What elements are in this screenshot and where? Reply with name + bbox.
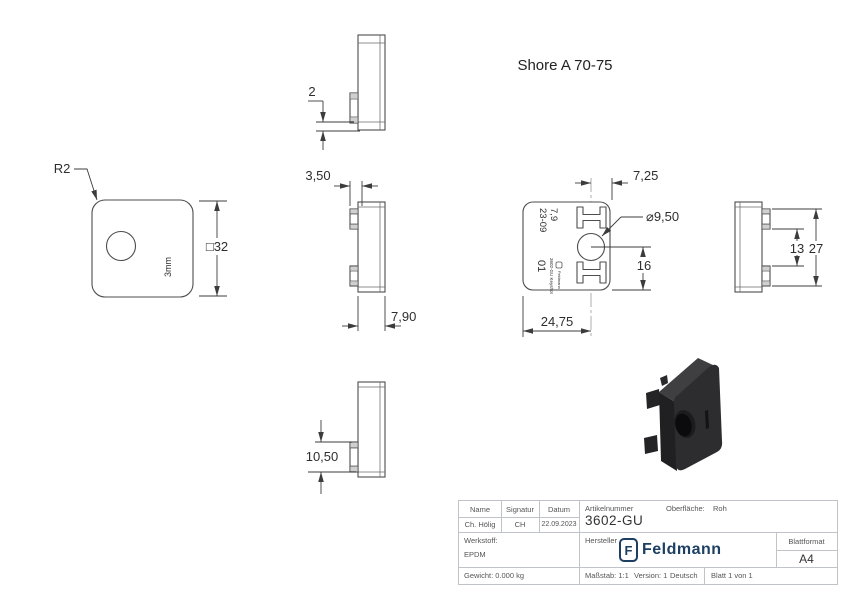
signatur-header: Signatur [501,501,539,517]
oberflaeche-value: Roh [713,503,753,513]
name-header: Name [459,501,501,517]
marking-date: 23-09 [537,208,548,232]
blattformat-label: Blattformat [776,532,837,550]
dim-tab-span: 27 [809,241,823,256]
part-top-tab [660,375,668,386]
dim-square-size: □32 [206,239,228,254]
part-left-tab-lower [644,435,658,454]
drawing-sheet: Shore A 70-75 2 [0,0,842,596]
view-side-bottom: 10,50 [301,382,385,494]
dim-hole-diameter: ⌀9,50 [646,209,679,224]
name-value: Ch. Hölig [459,517,501,532]
view-side-top: 2 [308,35,385,150]
oberflaeche-label: Oberfläche: [666,503,716,513]
dim-center-to-bottom: 16 [637,258,651,273]
marking-shore: 7,9 [548,208,559,221]
dim-lip-height: 2 [308,84,315,99]
dim-thickness: 7,90 [391,309,416,324]
view-back-face: 23-09 7,9 01 3602-GU Keyshot Feldmann 7,… [523,168,679,337]
feldmann-logo-text: Feldmann [642,541,722,559]
dim-boss-length: 10,50 [306,449,339,464]
massstab-value: Maßstab: 1:1 [585,567,633,584]
blattformat-value: A4 [776,550,837,567]
gewicht-value: Gewicht: 0.000 kg [464,567,574,584]
feldmann-logo-icon: F [619,538,638,562]
part-marking-thickness: 3mm [163,257,173,277]
artikelnummer-value: 3602-GU [585,512,685,528]
datum-value: 22.09.2023 [539,517,579,532]
marking-brand: Feldmann [557,271,562,289]
part-left-tab-upper [646,389,660,409]
dim-tab-gap: 13 [790,241,804,256]
sprache-value: Deutsch [670,567,702,584]
version-value: Version: 1 [634,567,672,584]
werkstoff-value: EPDM [464,549,544,559]
datum-header: Datum [539,501,579,517]
dim-edge-to-center: 24,75 [541,314,574,329]
werkstoff-label: Werkstoff: [464,535,544,545]
dim-center-to-edge: 7,25 [633,168,658,183]
part-3d-render [644,358,722,471]
marking-article: 3602-GU Keyshot [549,258,554,295]
signatur-value: CH [501,517,539,532]
title-block: Name Signatur Datum Ch. Hölig CH 22.09.2… [458,500,838,585]
view-side-middle: 3,50 7,90 [305,168,416,331]
marking-cavity: 01 [535,260,547,272]
view-front-face: 3mm R2 □32 [54,161,232,297]
blatt-value: Blatt 1 von 1 [711,567,771,584]
radius-callout: R2 [54,161,71,176]
feldmann-logo: F Feldmann [619,538,722,562]
view-side-right: 13 27 [735,202,825,292]
dim-boss-depth: 3,50 [305,168,330,183]
